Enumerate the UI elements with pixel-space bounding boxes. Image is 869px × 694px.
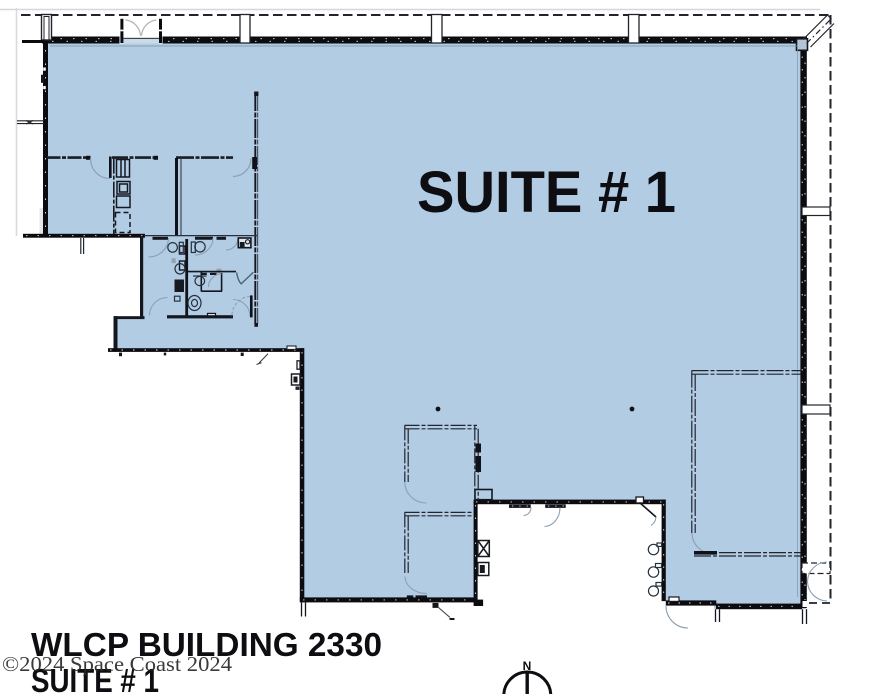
svg-text:SUITE # 1: SUITE # 1 [417, 160, 676, 225]
svg-text:N: N [523, 659, 532, 673]
svg-text:©2024 Space Coast 2024: ©2024 Space Coast 2024 [2, 652, 233, 676]
